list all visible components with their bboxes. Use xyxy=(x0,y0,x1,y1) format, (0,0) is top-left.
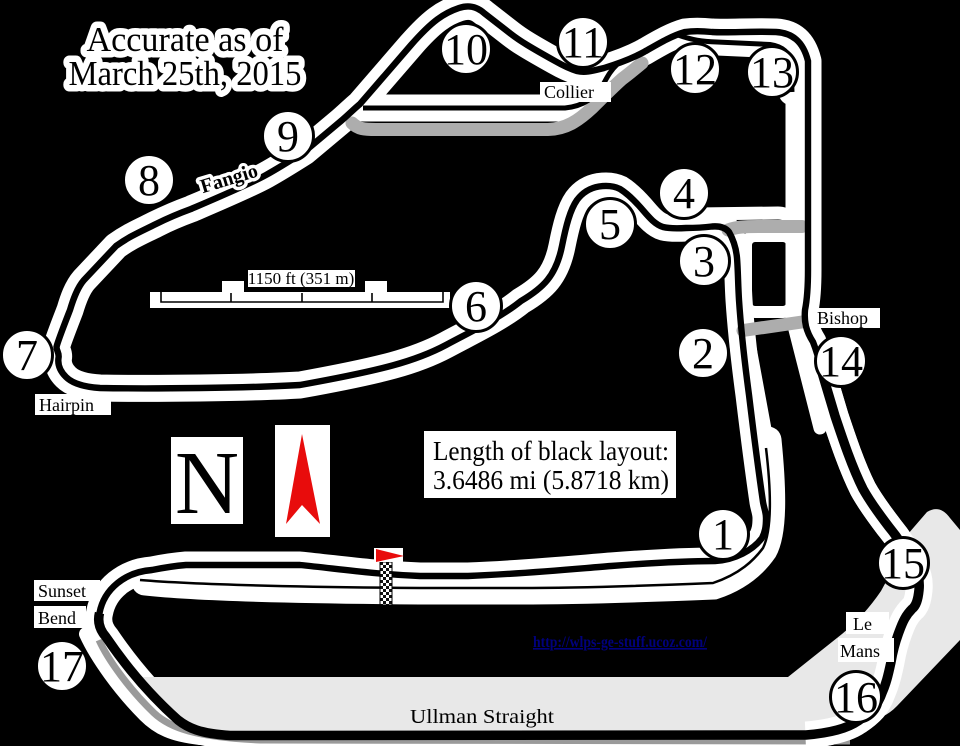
svg-text:12: 12 xyxy=(673,45,717,94)
svg-text:Sunset: Sunset xyxy=(38,581,86,601)
svg-text:11: 11 xyxy=(562,18,604,67)
svg-text:3.6486 mi (5.8718 km): 3.6486 mi (5.8718 km) xyxy=(433,464,669,495)
svg-text:Ullman Straight: Ullman Straight xyxy=(410,706,554,728)
svg-text:7: 7 xyxy=(16,331,38,380)
svg-text:N: N xyxy=(175,434,239,533)
svg-text:5: 5 xyxy=(599,200,621,249)
svg-text:1: 1 xyxy=(712,510,734,559)
svg-text:Le: Le xyxy=(853,614,872,634)
svg-text:16: 16 xyxy=(834,673,878,722)
svg-text:6: 6 xyxy=(465,282,487,331)
svg-text:2: 2 xyxy=(692,329,714,378)
svg-text:3: 3 xyxy=(693,237,715,286)
svg-text:Bishop: Bishop xyxy=(817,308,868,328)
svg-text:Hairpin: Hairpin xyxy=(39,395,94,415)
svg-text:13: 13 xyxy=(750,48,794,97)
svg-text:Mans: Mans xyxy=(840,641,880,661)
svg-text:10: 10 xyxy=(444,25,488,74)
svg-text:9: 9 xyxy=(277,112,299,161)
svg-text:17: 17 xyxy=(40,642,84,691)
svg-text:14: 14 xyxy=(819,337,863,386)
svg-text:4: 4 xyxy=(673,169,695,218)
svg-text:Length of black layout:: Length of black layout: xyxy=(433,435,669,466)
svg-text:http://wlps-ge-stuff.ucoz.com/: http://wlps-ge-stuff.ucoz.com/ xyxy=(533,634,707,651)
svg-text:1150 ft (351 m): 1150 ft (351 m) xyxy=(248,269,355,288)
svg-text:15: 15 xyxy=(881,539,925,588)
svg-text:Collier: Collier xyxy=(544,82,594,102)
svg-text:8: 8 xyxy=(138,156,160,205)
svg-text:March 25th, 2015: March 25th, 2015 xyxy=(69,54,302,93)
svg-text:Bend: Bend xyxy=(38,608,76,628)
